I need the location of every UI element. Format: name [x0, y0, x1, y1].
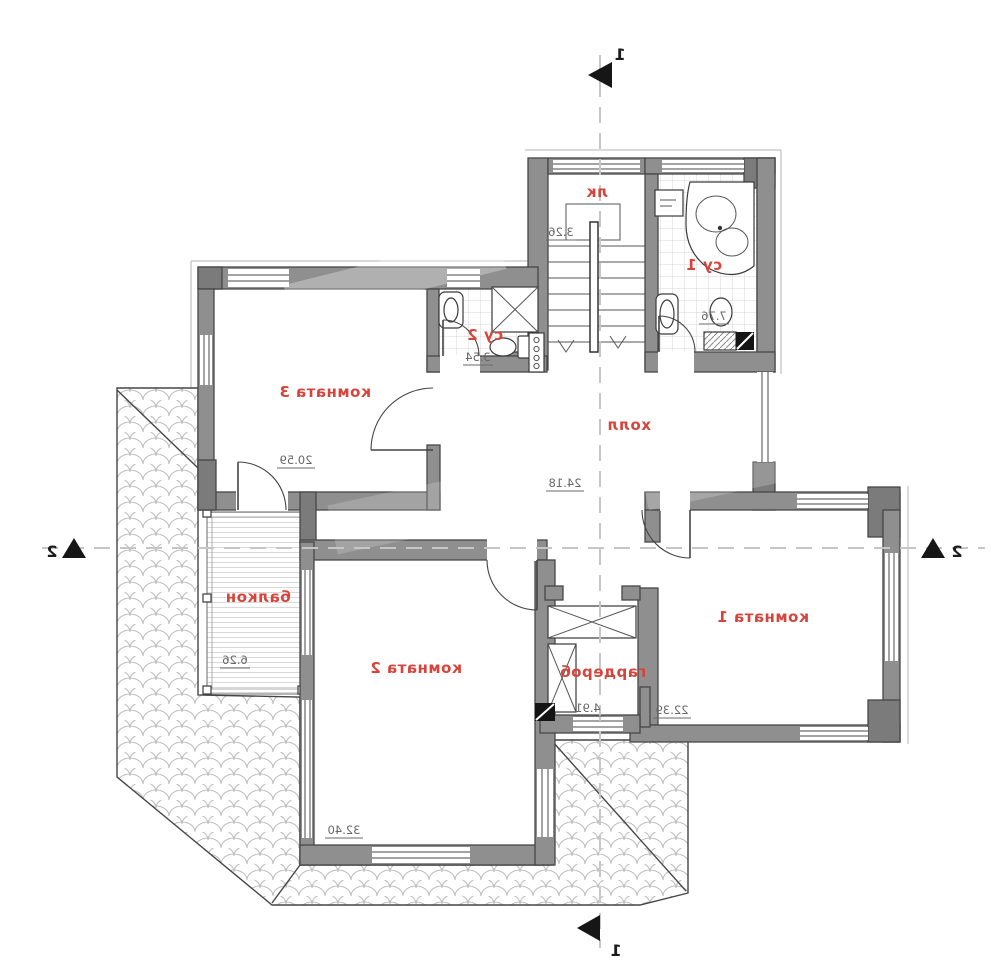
area-room3: 20.59 [280, 453, 313, 467]
window-room1-right [885, 553, 898, 661]
stair-rail [590, 222, 598, 352]
area-hall: 24.18 [549, 476, 582, 490]
section-label-bottom: 1 [610, 941, 621, 960]
label-stairs: лк [586, 183, 608, 201]
window-room2-bottom [372, 847, 470, 863]
window-room1-bottom [800, 727, 868, 740]
window-room2-right [537, 769, 553, 837]
bath1-cabinet [655, 190, 683, 216]
label-room2: комната 2 [370, 659, 462, 677]
label-room1: комната 1 [717, 608, 809, 626]
area-bath2: 3.54 [465, 350, 491, 364]
bath2-radiator [529, 333, 544, 372]
window-room3-left [200, 335, 212, 385]
label-hall: холл [607, 416, 651, 434]
window-stairs-top [553, 160, 640, 172]
area-stairs: 3.26 [548, 225, 574, 239]
floor-plan-page: 1 1 2 2 3.26 7.76 3.54 20.59 24.18 6.26 … [0, 0, 1000, 965]
window-room1-top [797, 494, 868, 508]
window-bath2-top [447, 269, 480, 287]
area-room1: 22.39 [656, 703, 689, 717]
area-room2: 32.40 [328, 823, 361, 837]
window-room3-top [228, 269, 289, 287]
area-wardrobe: 4.91 [575, 701, 601, 715]
label-wardrobe: гардероб [560, 663, 647, 681]
window-room2-left-lower [302, 700, 312, 838]
window-wardrobe-bottom [573, 717, 623, 731]
label-balcony: балкон [225, 588, 290, 606]
window-room2-left-upper [302, 570, 312, 655]
window-bath1-top [662, 160, 744, 172]
area-balcony: 6.26 [222, 653, 248, 667]
section-label-top: 1 [614, 45, 625, 64]
label-bath1: су 1 [686, 256, 722, 274]
bath1-cistern [704, 332, 736, 350]
window-hall-right [757, 372, 773, 462]
label-bath2: су 2 [467, 326, 503, 344]
label-room3: комната 3 [279, 383, 371, 401]
section-label-left: 2 [46, 542, 57, 561]
floor-plan-svg: 1 1 2 2 3.26 7.76 3.54 20.59 24.18 6.26 … [0, 0, 1000, 965]
section-label-right: 2 [951, 542, 962, 561]
area-bath1: 7.76 [701, 309, 727, 323]
